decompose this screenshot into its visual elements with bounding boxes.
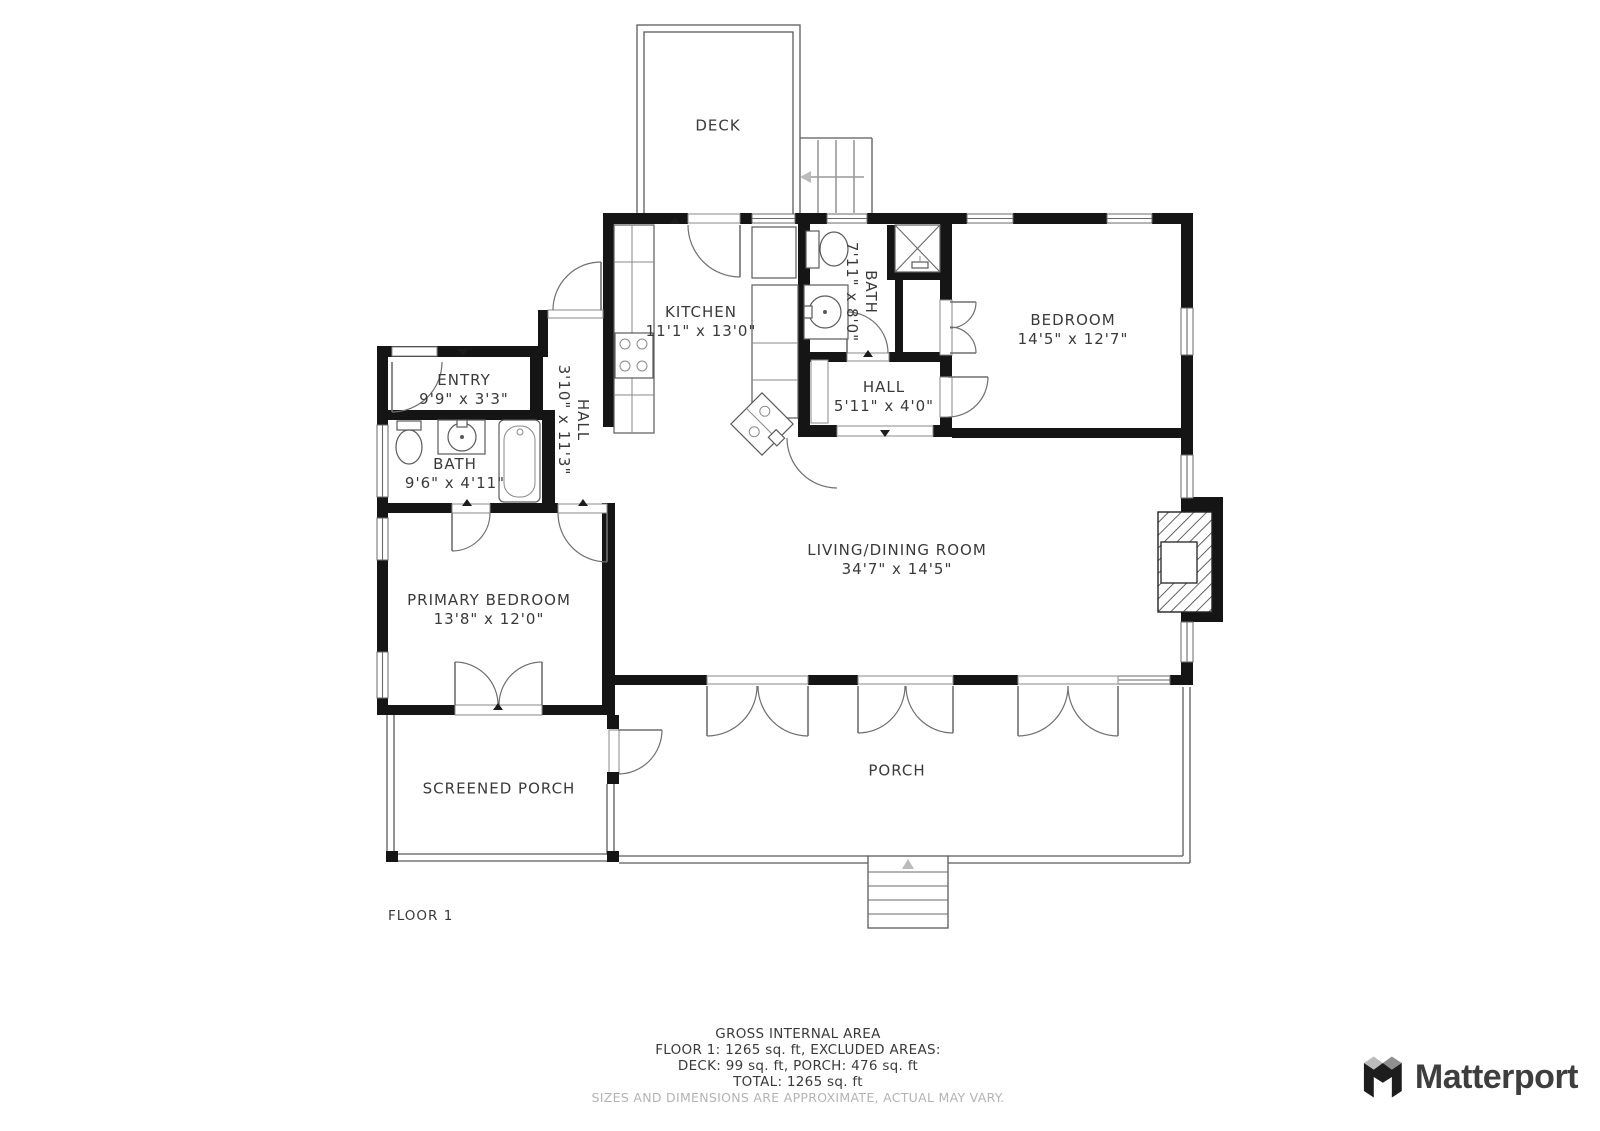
stairs-direction-arrow [800,171,811,183]
room-label-hall-west: HALL 3'10" x 11'3" [554,365,592,476]
room-label-entry: ENTRY 9'9" x 3'3" [419,371,509,409]
room-dimensions: 9'6" x 4'11" [405,474,505,493]
window [967,214,1013,223]
closet-nook [811,360,828,423]
room-name: HALL [834,378,934,397]
summary-title: GROSS INTERNAL AREA [592,1026,1005,1042]
summary-disclaimer: SIZES AND DIMENSIONS ARE APPROXIMATE, AC… [592,1090,1005,1106]
room-dimensions: 14'5" x 12'7" [1018,330,1129,349]
room-dimensions: 34'7" x 14'5" [807,560,987,579]
room-name: PORCH [868,762,925,781]
room-dimensions: 5'11" x 4'0" [834,397,934,416]
window [1181,308,1193,355]
room-name: SCREENED PORCH [423,780,576,799]
shower-icon [895,225,940,272]
room-label-hall-center: HALL 5'11" x 4'0" [834,378,934,416]
room-dimensions: 11'1" x 13'0" [646,322,757,341]
room-name: LIVING/DINING ROOM [807,541,987,560]
window [1181,455,1193,498]
room-dimensions: 3'10" x 11'3" [554,365,573,476]
room-name: DECK [695,117,740,136]
summary-excluded: DECK: 99 sq. ft, PORCH: 476 sq. ft [592,1058,1005,1074]
room-label-bath-west: BATH 9'6" x 4'11" [405,455,505,493]
room-label-bedroom: BEDROOM 14'5" x 12'7" [1018,311,1129,349]
window [377,425,388,497]
area-summary: GROSS INTERNAL AREA FLOOR 1: 1265 sq. ft… [592,1026,1005,1106]
sink-icon-west-bath [438,420,485,454]
window [377,518,388,560]
room-label-kitchen: KITCHEN 11'1" x 13'0" [646,303,757,341]
window [1118,676,1170,684]
room-name: KITCHEN [646,303,757,322]
summary-total: TOTAL: 1265 sq. ft [592,1074,1005,1090]
porch-stairs [868,856,948,928]
matterport-logo: Matterport [1359,1052,1578,1102]
window [752,214,795,223]
floorplan-drawing [0,0,1600,1131]
deck-stairs [800,138,872,213]
room-label-porch: PORCH [868,762,925,781]
room-label-bath-top: BATH 7'11" x 8'0" [842,242,880,342]
room-dimensions: 7'11" x 8'0" [842,242,861,342]
room-dimensions: 13'8" x 12'0" [407,610,571,629]
room-label-living: LIVING/DINING ROOM 34'7" x 14'5" [807,541,987,579]
room-name: BATH [861,242,880,342]
floorplan-page: DECK KITCHEN 11'1" x 13'0" BATH 7'11" x … [0,0,1600,1131]
matterport-logo-icon [1359,1052,1405,1102]
matterport-logo-text: Matterport [1415,1058,1578,1097]
window [377,652,388,698]
room-dimensions: 9'9" x 3'3" [419,390,509,409]
bathtub-icon [499,420,540,502]
room-name: BEDROOM [1018,311,1129,330]
room-name: ENTRY [419,371,509,390]
stairs-direction-arrow [902,859,914,869]
room-label-primary-bedroom: PRIMARY BEDROOM 13'8" x 12'0" [407,591,571,629]
fireplace [1158,497,1223,622]
summary-floor: FLOOR 1: 1265 sq. ft, EXCLUDED AREAS: [592,1042,1005,1058]
window [827,214,867,223]
room-label-deck: DECK [695,117,740,136]
floor-label: FLOOR 1 [388,908,453,924]
room-name: HALL [573,365,592,476]
window [1107,214,1152,223]
room-name: BATH [405,455,505,474]
room-name: PRIMARY BEDROOM [407,591,571,610]
refrigerator-icon [752,227,796,278]
room-label-screened-porch: SCREENED PORCH [423,780,576,799]
window [1181,622,1193,662]
